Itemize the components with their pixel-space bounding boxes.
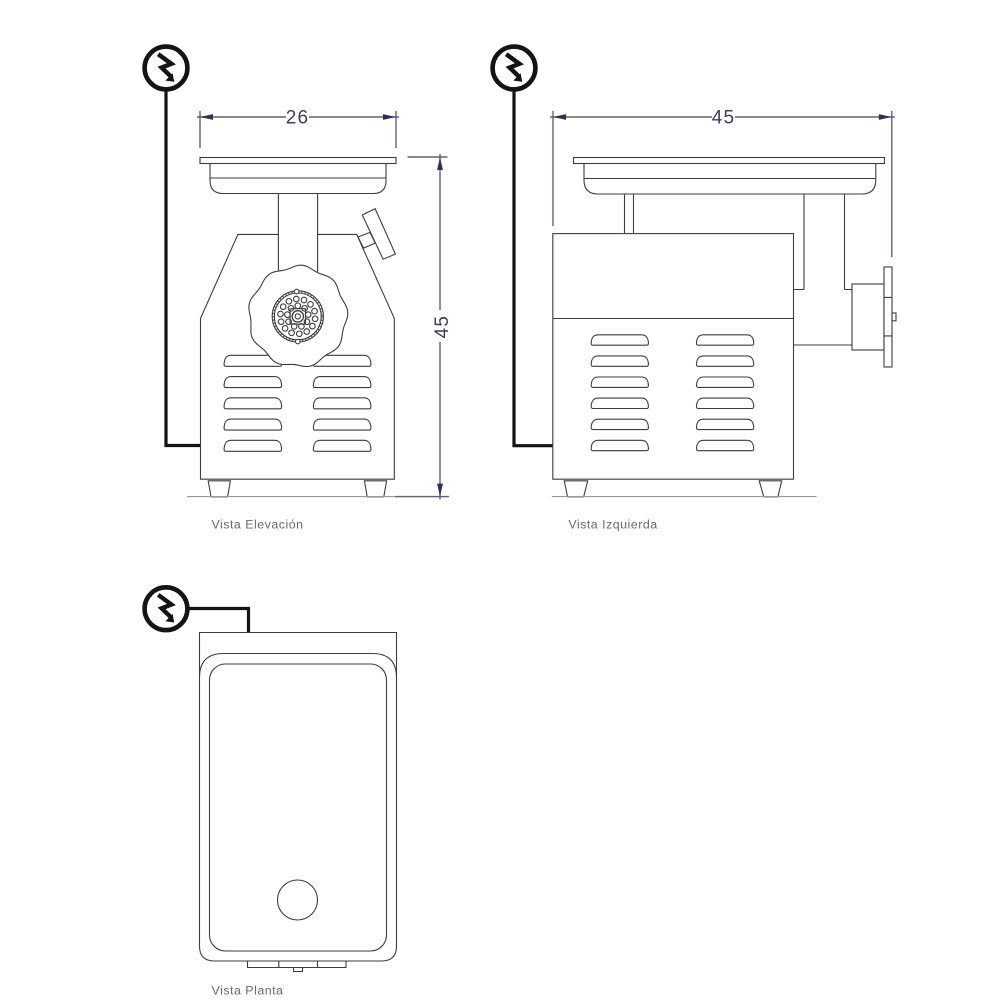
svg-text:Vista Elevación: Vista Elevación: [212, 517, 304, 531]
svg-text:Vista Izquierda: Vista Izquierda: [568, 517, 657, 531]
svg-text:Vista Planta: Vista Planta: [212, 984, 284, 998]
svg-text:45: 45: [432, 315, 453, 339]
svg-text:26: 26: [286, 107, 310, 128]
svg-text:45: 45: [712, 107, 736, 128]
